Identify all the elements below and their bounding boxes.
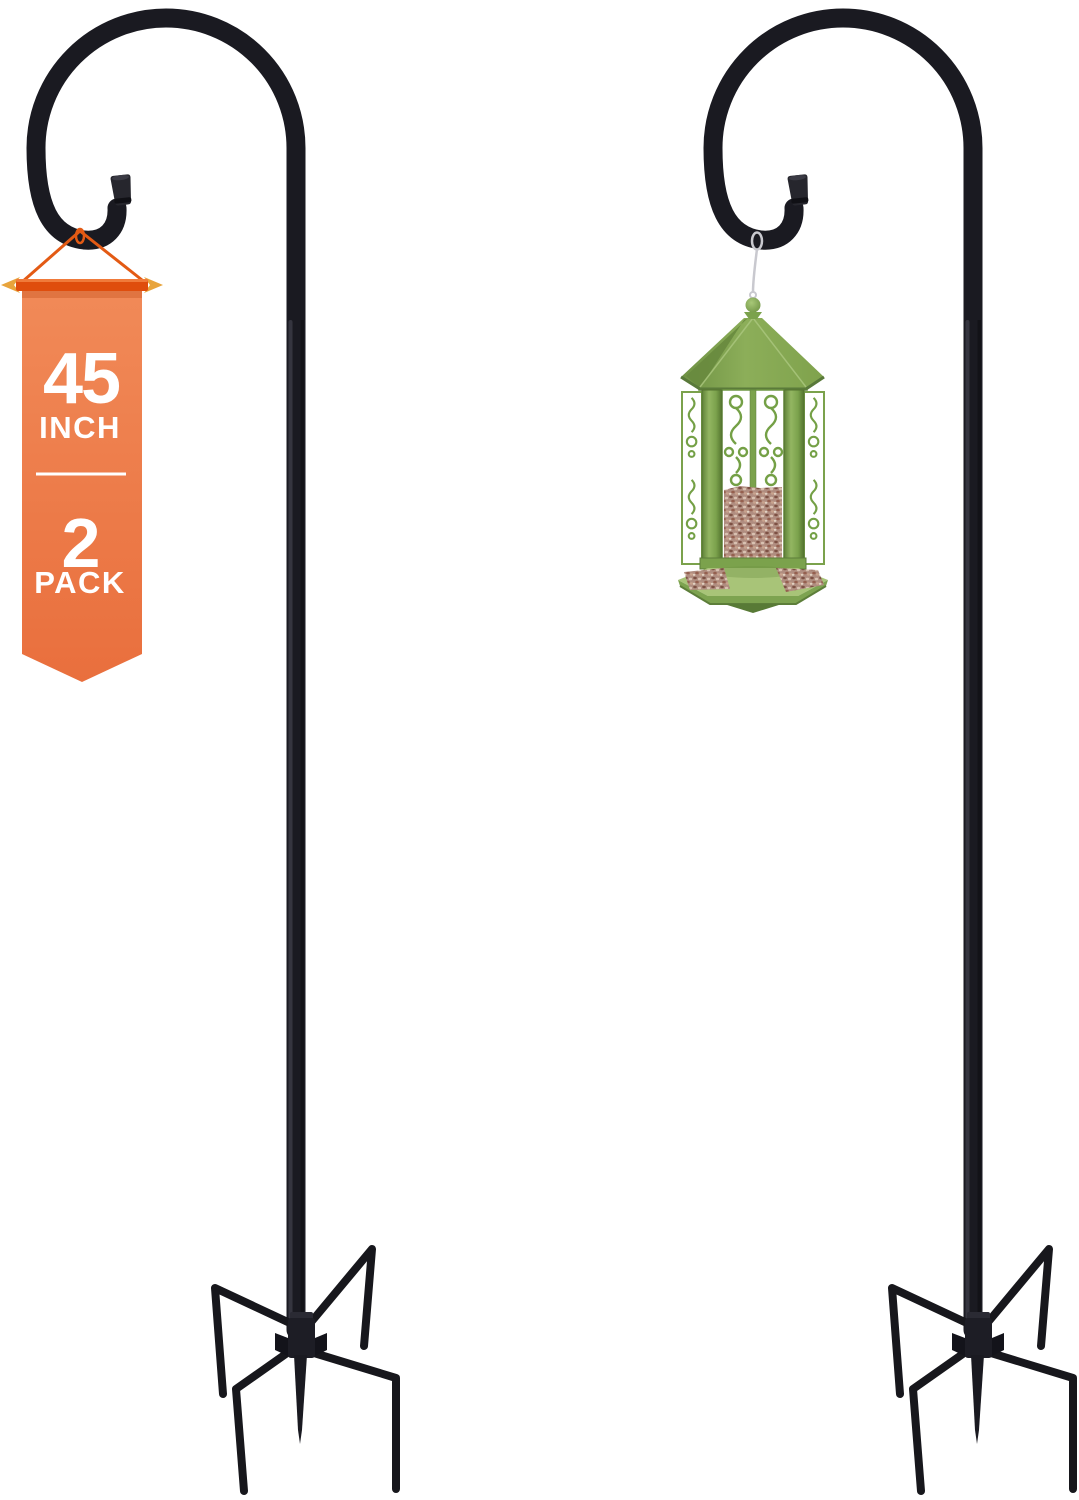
badge-size-number: 45	[43, 339, 120, 419]
feeder-mullion	[750, 390, 756, 488]
badge-hanger-bar-highlight	[16, 279, 148, 282]
feeder-seed-window	[724, 486, 782, 565]
ribbon-badge: 45 INCH 2 PACK	[1, 229, 163, 682]
badge-size-unit: INCH	[39, 410, 121, 445]
background	[0, 0, 1079, 1500]
feeder-pillar-right	[784, 390, 804, 562]
product-photo: 45 INCH 2 PACK	[0, 0, 1079, 1500]
feeder-pillar-left	[702, 390, 722, 562]
product-image-canvas: 45 INCH 2 PACK	[0, 0, 1079, 1500]
badge-pack-label: PACK	[34, 565, 126, 600]
feeder-body	[682, 388, 824, 569]
feeder-finial-ball	[746, 298, 761, 313]
